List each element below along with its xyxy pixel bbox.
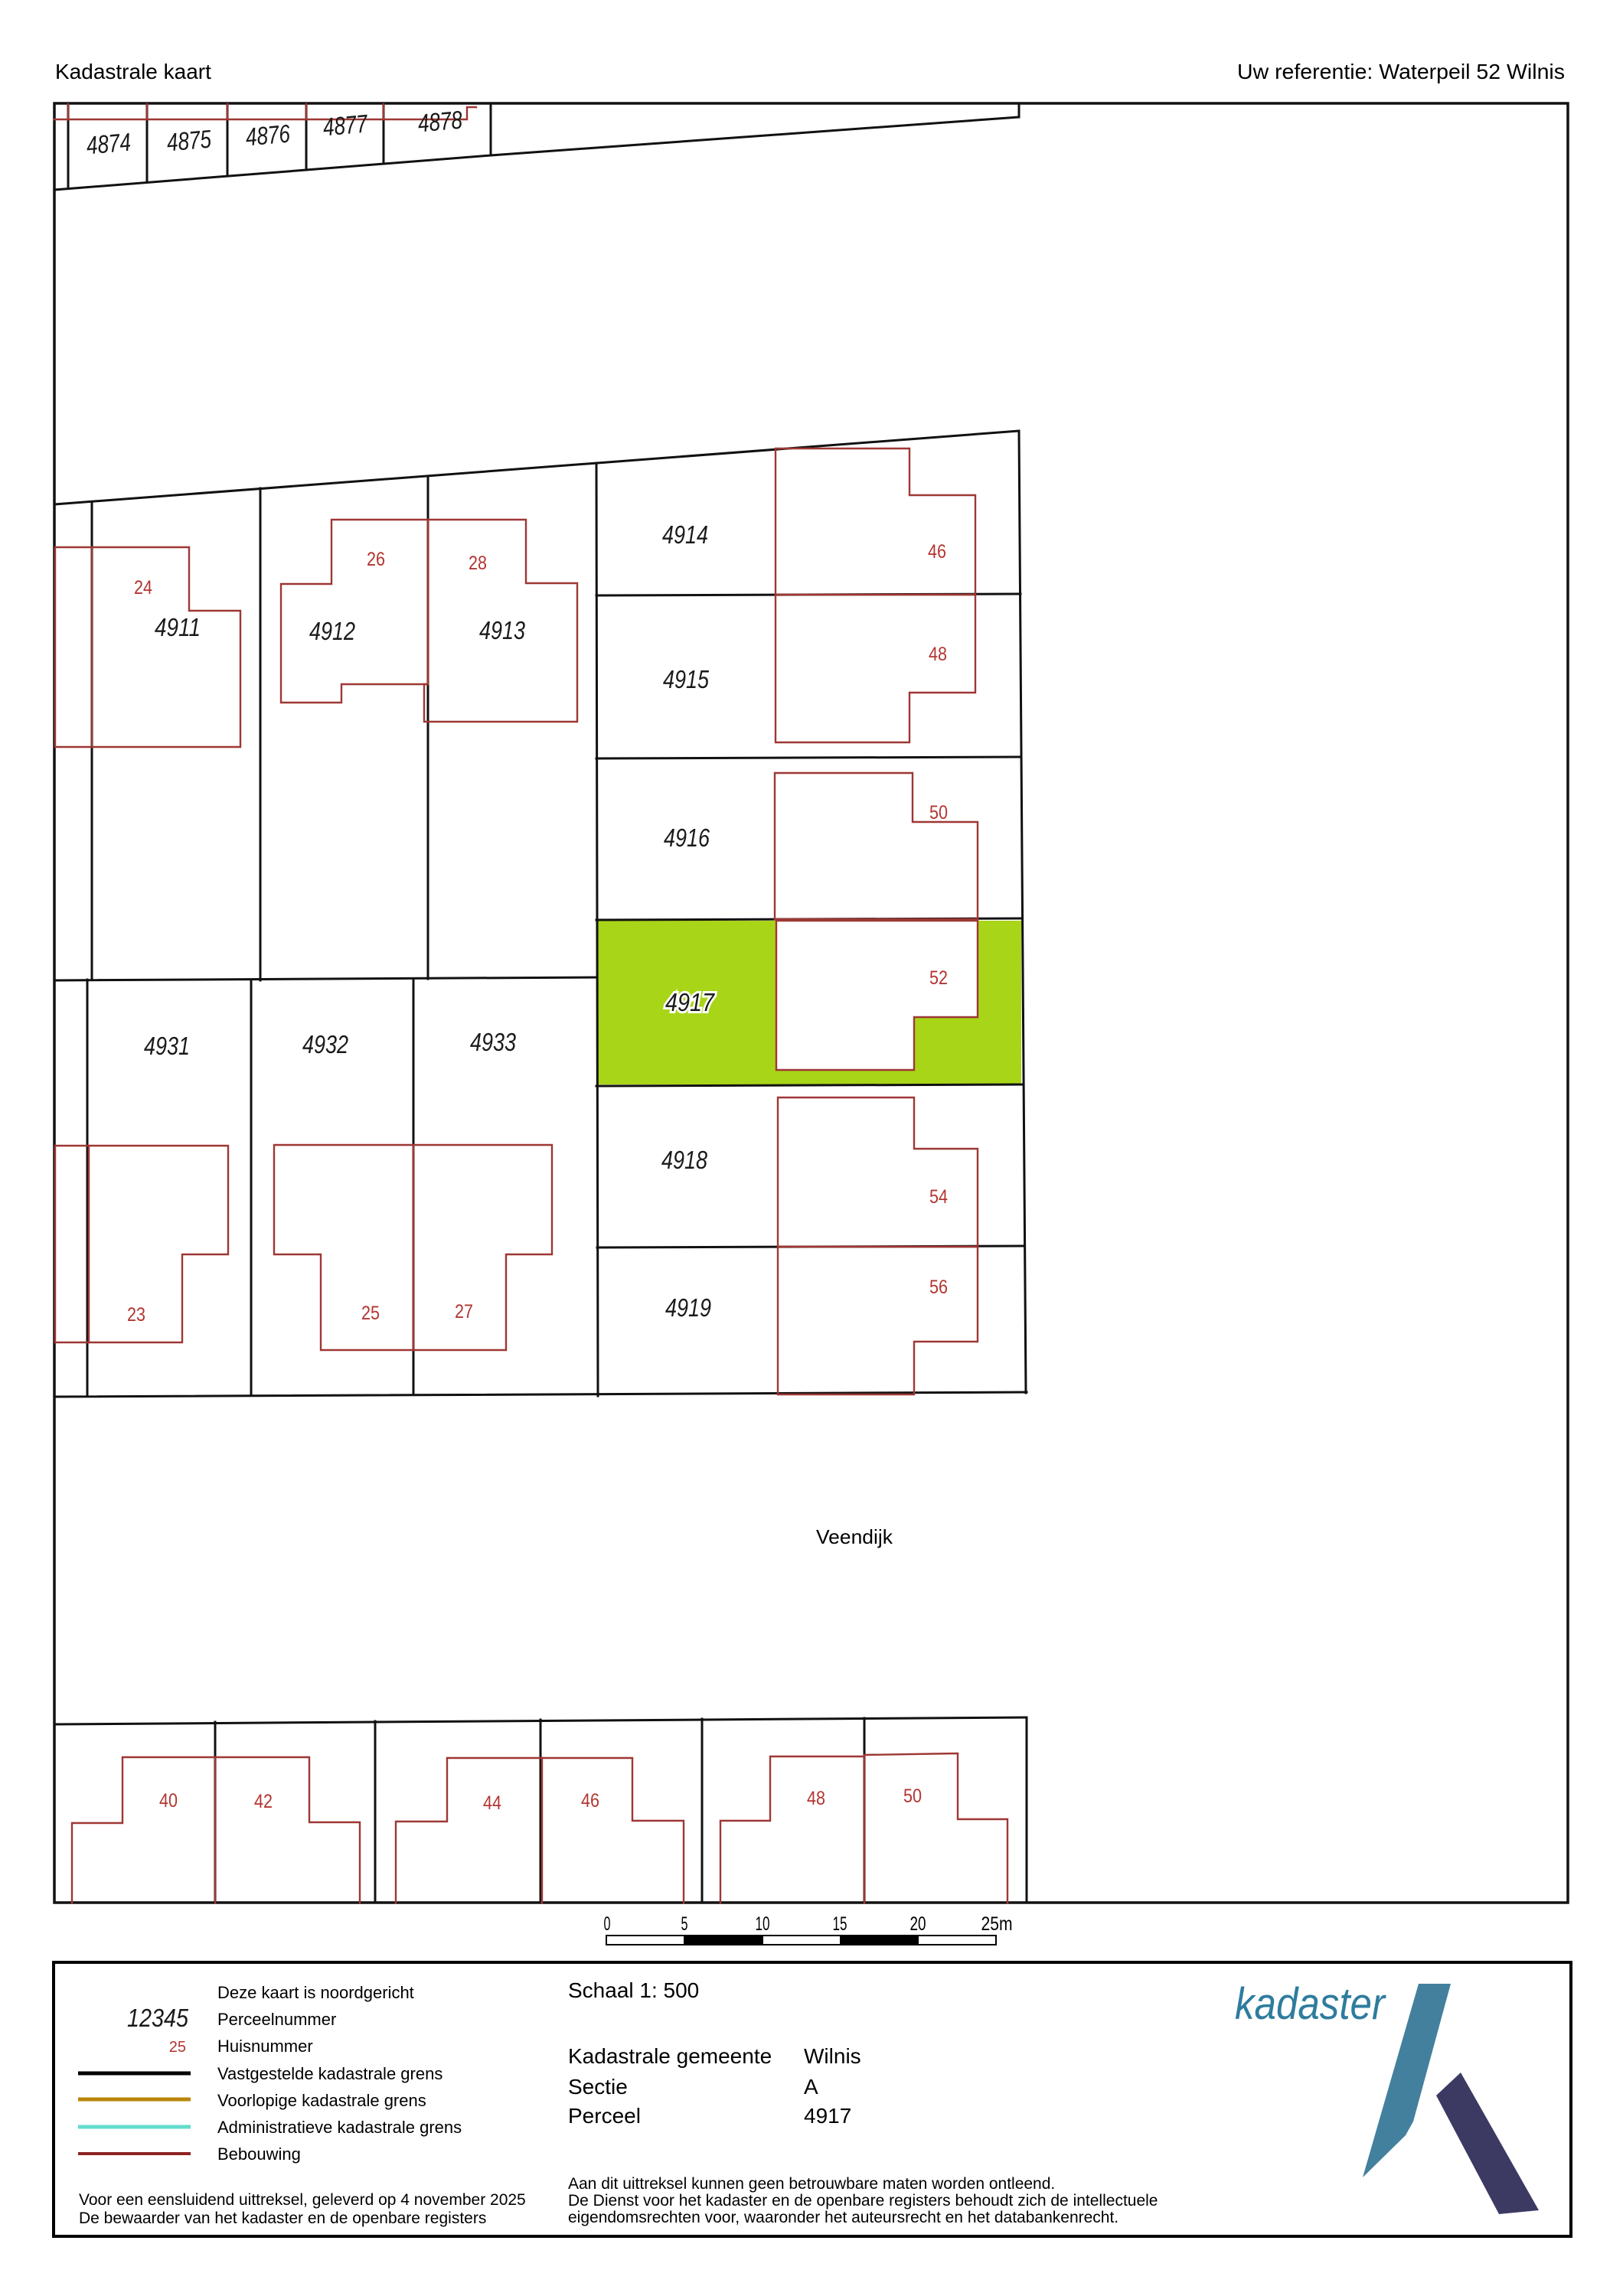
svg-text:23: 23 [127,1304,145,1326]
svg-text:Bebouwing: Bebouwing [217,2144,301,2164]
svg-text:25m: 25m [981,1913,1013,1935]
svg-text:50: 50 [903,1786,922,1807]
svg-text:Kadastrale kaart: Kadastrale kaart [55,60,211,83]
svg-text:Perceelnummer: Perceelnummer [217,2010,336,2029]
svg-text:12345: 12345 [127,2004,189,2032]
svg-text:De bewaarder van het kadaster: De bewaarder van het kadaster en de open… [79,2210,486,2227]
svg-text:Wilnis: Wilnis [804,2044,861,2068]
svg-text:0: 0 [604,1913,611,1935]
svg-text:42: 42 [254,1791,273,1812]
svg-text:15: 15 [833,1913,847,1935]
svg-text:44: 44 [483,1792,501,1814]
svg-text:Aan dit uittreksel kunnen geen: Aan dit uittreksel kunnen geen betrouwba… [568,2175,1055,2193]
svg-text:Perceel: Perceel [568,2104,641,2128]
svg-text:Vastgestelde kadastrale grens: Vastgestelde kadastrale grens [217,2064,442,2083]
svg-text:56: 56 [929,1277,948,1298]
svg-text:4915: 4915 [663,665,710,693]
svg-text:50: 50 [929,802,948,823]
svg-text:4914: 4914 [662,520,708,549]
svg-text:40: 40 [159,1790,178,1812]
svg-text:4919: 4919 [665,1293,711,1322]
svg-text:4917: 4917 [665,988,715,1016]
svg-text:Huisnummer: Huisnummer [217,2037,313,2056]
svg-text:27: 27 [455,1301,473,1322]
svg-text:48: 48 [807,1788,825,1809]
svg-text:4918: 4918 [661,1146,708,1174]
svg-text:28: 28 [469,553,487,574]
svg-text:4911: 4911 [155,613,201,641]
svg-text:Administratieve kadastrale gre: Administratieve kadastrale grens [217,2118,462,2137]
svg-text:kadaster: kadaster [1235,1979,1386,2029]
svg-text:4874: 4874 [85,128,132,160]
svg-text:4932: 4932 [302,1030,348,1058]
svg-text:4931: 4931 [144,1032,190,1060]
svg-text:Voor een eensluidend uittrekse: Voor een eensluidend uittreksel, gelever… [79,2191,526,2209]
svg-text:De Dienst voor het kadaster en: De Dienst voor het kadaster en de openba… [568,2192,1158,2210]
svg-text:52: 52 [929,967,948,989]
svg-text:Deze kaart is noordgericht: Deze kaart is noordgericht [217,1983,414,2002]
svg-text:A: A [804,2075,818,2099]
svg-text:4913: 4913 [479,616,526,644]
svg-text:Schaal 1: 500: Schaal 1: 500 [568,1978,699,2002]
svg-text:24: 24 [134,577,152,598]
svg-text:4916: 4916 [664,823,710,852]
svg-text:48: 48 [929,644,947,665]
svg-text:4878: 4878 [416,106,464,138]
svg-text:eigendomsrechten voor, waarond: eigendomsrechten voor, waaronder het aut… [568,2209,1118,2226]
svg-text:4933: 4933 [470,1028,517,1056]
svg-text:Kadastrale gemeente: Kadastrale gemeente [568,2044,772,2068]
svg-text:25: 25 [361,1303,380,1324]
svg-text:54: 54 [929,1186,948,1208]
svg-text:25: 25 [169,2039,186,2056]
svg-text:4875: 4875 [165,125,213,157]
svg-text:Uw referentie: Waterpeil 52 Wi: Uw referentie: Waterpeil 52 Wilnis [1237,60,1565,83]
svg-text:46: 46 [928,541,946,563]
svg-text:Veendijk: Veendijk [816,1525,893,1548]
svg-text:4876: 4876 [244,119,292,152]
svg-text:4912: 4912 [309,617,355,645]
svg-text:10: 10 [756,1913,770,1935]
svg-text:Voorlopige kadastrale grens: Voorlopige kadastrale grens [217,2091,426,2110]
svg-text:4877: 4877 [322,109,369,141]
svg-text:46: 46 [581,1790,599,1812]
svg-text:20: 20 [910,1913,926,1935]
svg-text:26: 26 [367,549,385,570]
svg-text:5: 5 [681,1913,688,1935]
svg-text:Sectie: Sectie [568,2075,628,2099]
svg-text:4917: 4917 [804,2104,851,2128]
